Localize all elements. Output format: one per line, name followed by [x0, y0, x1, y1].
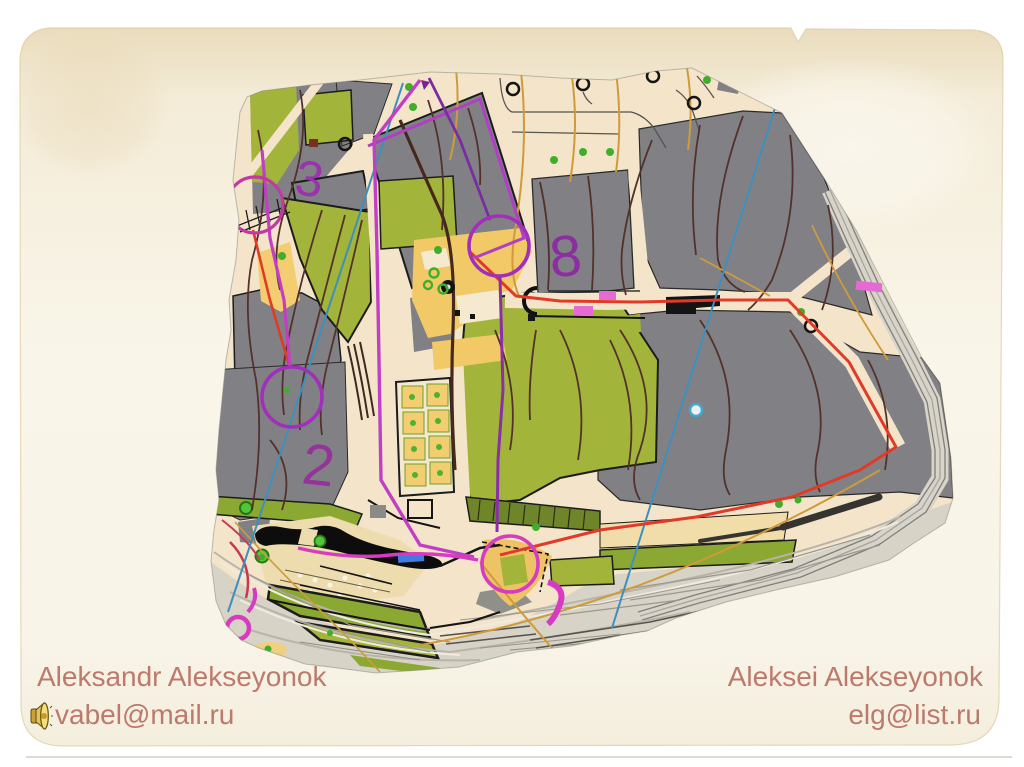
svg-text:elg@list.ru: elg@list.ru — [848, 699, 981, 730]
svg-text:8: 8 — [547, 223, 584, 290]
svg-text:Aleksandr Alekseyonok: Aleksandr Alekseyonok — [37, 661, 328, 692]
svg-text:vabel@mail.ru: vabel@mail.ru — [55, 699, 234, 730]
svg-text:2: 2 — [299, 431, 338, 499]
svg-text:Aleksei Alekseyonok: Aleksei Alekseyonok — [728, 661, 984, 692]
